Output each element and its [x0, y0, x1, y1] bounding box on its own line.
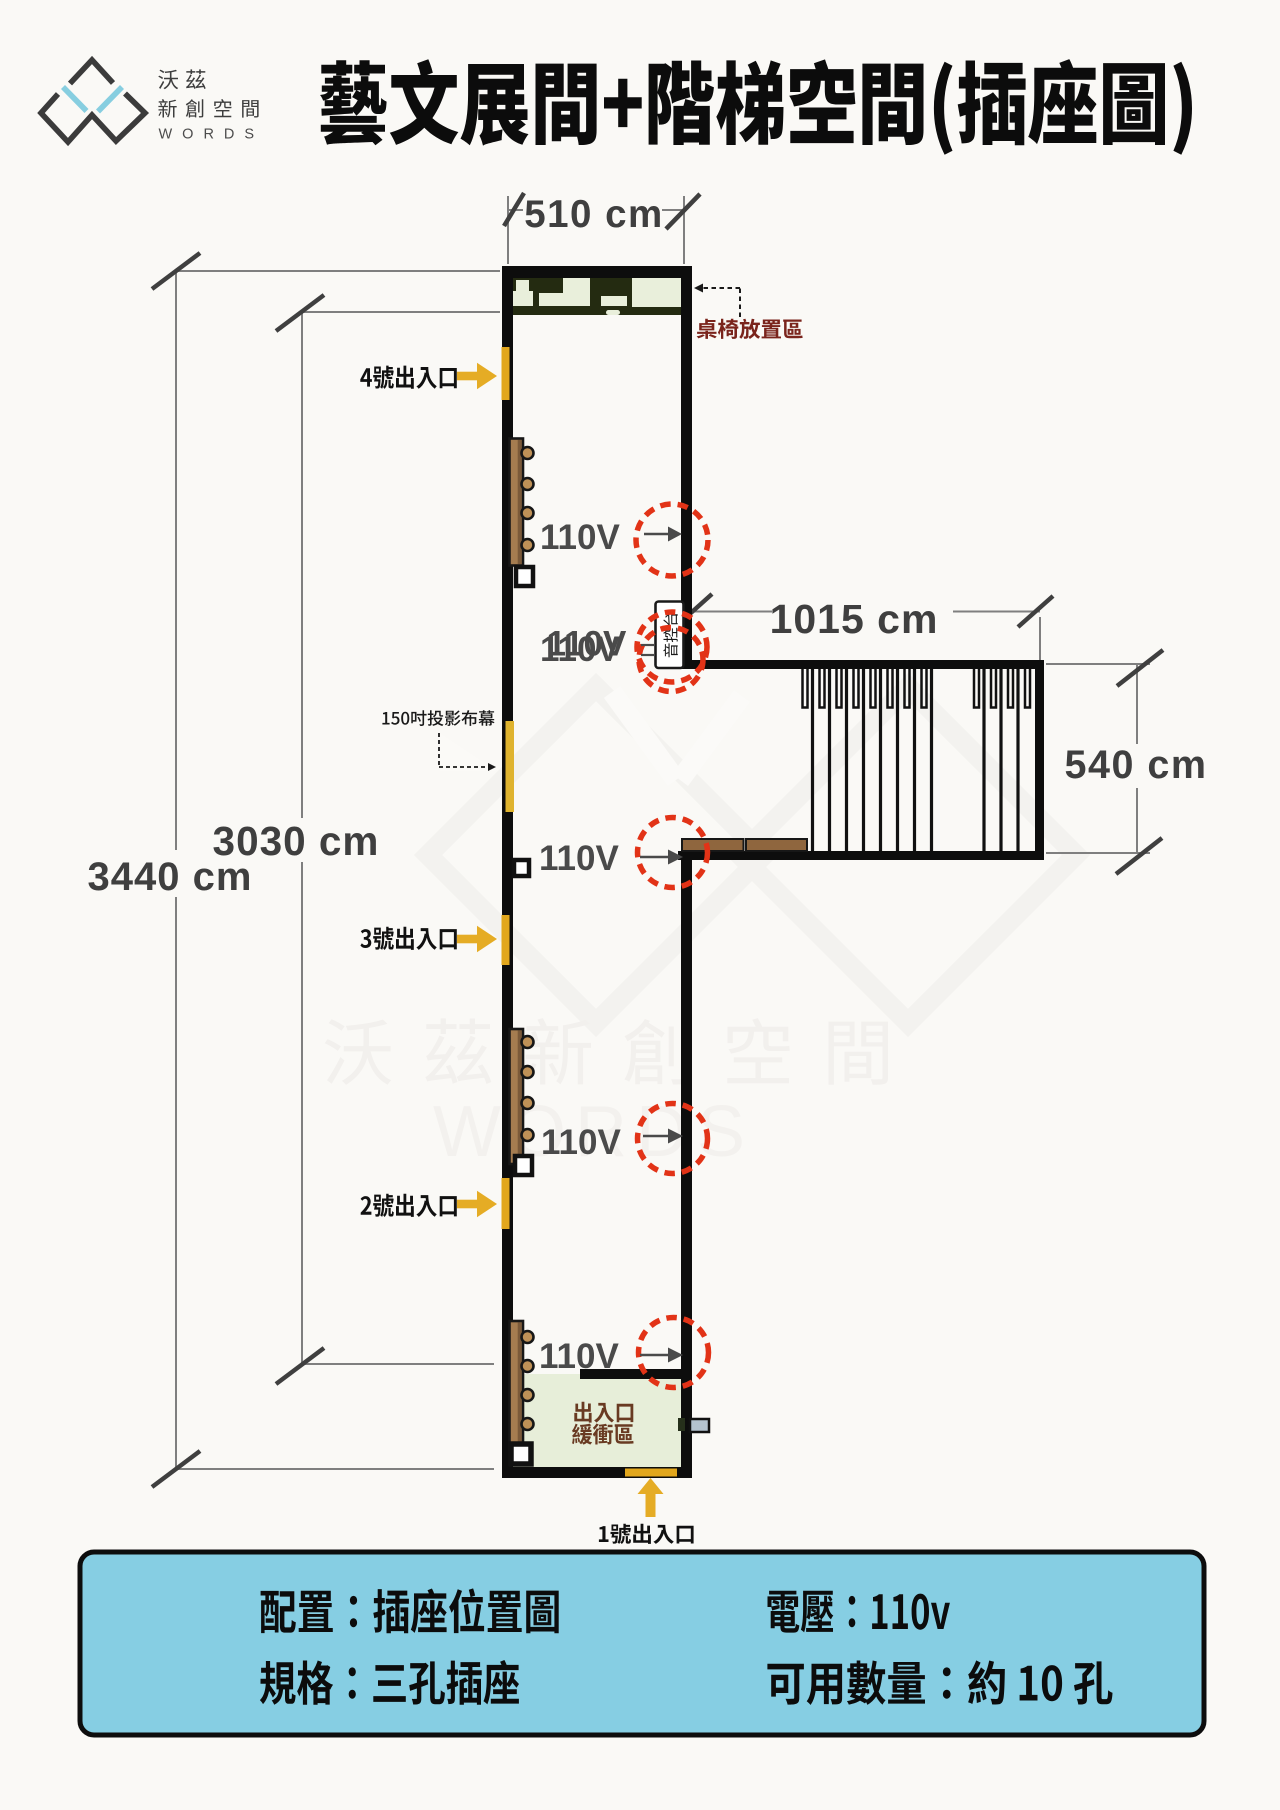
svg-text:510 cm: 510 cm [524, 193, 664, 236]
svg-text:110V: 110V [540, 518, 620, 557]
svg-text:110V: 110V [541, 1123, 621, 1162]
svg-text:540 cm: 540 cm [1065, 743, 1208, 787]
svg-text:1015 cm: 1015 cm [770, 596, 939, 642]
svg-text:110V: 110V [539, 839, 619, 878]
svg-text:110V: 110V [539, 1337, 619, 1376]
svg-text:110V: 110V [547, 625, 627, 664]
svg-text:WORDS: WORDS [159, 127, 265, 143]
svg-text:3030 cm: 3030 cm [213, 818, 380, 864]
